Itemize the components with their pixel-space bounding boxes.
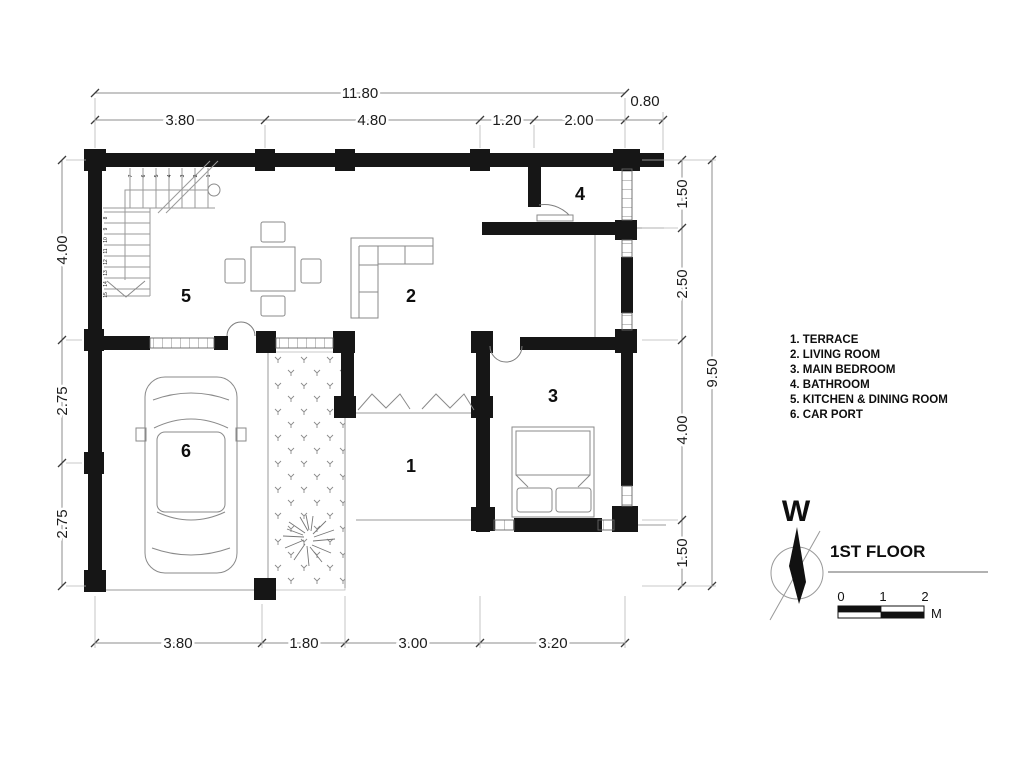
bathroom-door-arc [537, 205, 573, 221]
dim-label: 2.00 [564, 112, 593, 129]
scale-segment [881, 612, 924, 618]
tread-number: 7 [128, 174, 134, 177]
title-block: 1ST FLOOR [828, 542, 988, 572]
tread-number: 3 [180, 174, 186, 177]
tread-number: 4 [167, 174, 173, 177]
scale-segment [881, 606, 924, 612]
stair-tread-numbers: 1 2 3 4 5 6 7 8 9 10 11 12 13 14 15 [103, 174, 212, 297]
dim-label: 4.00 [674, 415, 691, 444]
dim-label: 4.00 [54, 235, 71, 264]
tread-number: 9 [103, 227, 109, 230]
room-label-carport: 6 [181, 441, 191, 461]
scale-tick-label: 0 [837, 589, 844, 604]
scale-tick-label: 2 [921, 589, 928, 604]
dim-label: 1.20 [492, 112, 521, 129]
legend-item: 4. BATHROOM [790, 379, 870, 391]
dining-set-icon [225, 222, 321, 316]
room-label-kitchen: 5 [181, 286, 191, 306]
compass-icon: W [770, 495, 823, 620]
dimension-ticks [58, 89, 716, 647]
room-label-living: 2 [406, 286, 416, 306]
walls [84, 149, 664, 600]
dim-label: 3.80 [165, 112, 194, 129]
room-label-terrace: 1 [406, 456, 416, 476]
scale-unit-label: M [931, 606, 942, 621]
tread-number: 11 [103, 248, 109, 253]
tread-number: 10 [103, 237, 109, 243]
dim-label: 1.80 [289, 635, 318, 652]
legend-item: 5. KITCHEN & DINING ROOM [790, 394, 948, 406]
bed-icon [512, 427, 594, 517]
bedroom-double-door-arc [490, 346, 522, 362]
legend-item: 2. LIVING ROOM [790, 349, 880, 361]
dim-label: 2.75 [54, 509, 71, 538]
scale-bar: 0 1 2 M [837, 589, 941, 621]
legend-item: 3. MAIN BEDROOM [790, 364, 895, 376]
dim-label: 11.80 [342, 85, 378, 102]
compass-west-letter: W [782, 495, 811, 528]
dim-label: 2.50 [674, 269, 691, 298]
construction-lines [95, 228, 666, 590]
folding-door-icon [358, 394, 474, 410]
page-title: 1ST FLOOR [830, 542, 925, 561]
scale-tick-label: 1 [879, 589, 886, 604]
car-icon [136, 377, 246, 573]
kitchen-double-door-arc [227, 322, 255, 336]
tread-number: 13 [103, 270, 109, 276]
scale-segment [838, 606, 881, 612]
tread-number: 12 [103, 259, 109, 265]
dim-label: 3.80 [163, 635, 192, 652]
dim-label: 2.75 [54, 386, 71, 415]
dim-label: 4.80 [357, 112, 386, 129]
scale-segment [838, 612, 881, 618]
sofa-icon [351, 238, 433, 318]
extension-lines [66, 98, 716, 648]
garden-strip [268, 352, 345, 590]
legend: 1. TERRACE 2. LIVING ROOM 3. MAIN BEDROO… [790, 334, 948, 421]
floor-plan-drawing: 1 2 3 4 5 6 7 8 9 10 11 12 13 14 15 [0, 0, 1024, 768]
compass-needle [789, 527, 806, 604]
grass-area [268, 352, 345, 590]
tread-number: 8 [103, 216, 109, 219]
dim-label: 0.80 [630, 93, 659, 110]
floor-plan-sheet: 1 2 3 4 5 6 7 8 9 10 11 12 13 14 15 [0, 0, 1024, 768]
tread-number: 1 [206, 174, 212, 177]
legend-item: 6. CAR PORT [790, 409, 863, 421]
stairs: 1 2 3 4 5 6 7 8 9 10 11 12 13 14 15 [103, 161, 220, 298]
tread-number: 2 [193, 174, 199, 177]
room-label-bedroom: 3 [548, 386, 558, 406]
dim-label: 3.20 [538, 635, 567, 652]
tread-number: 14 [103, 281, 109, 287]
legend-item: 1. TERRACE [790, 334, 859, 346]
tread-number: 15 [103, 292, 109, 298]
dim-label: 1.50 [674, 179, 691, 208]
stair-start-post [208, 184, 220, 196]
tread-number: 6 [141, 174, 147, 177]
dim-label: 3.00 [398, 635, 427, 652]
dim-label: 9.50 [704, 358, 721, 387]
room-label-bathroom: 4 [575, 184, 585, 204]
dim-label: 1.50 [674, 538, 691, 567]
tread-number: 5 [154, 174, 160, 177]
